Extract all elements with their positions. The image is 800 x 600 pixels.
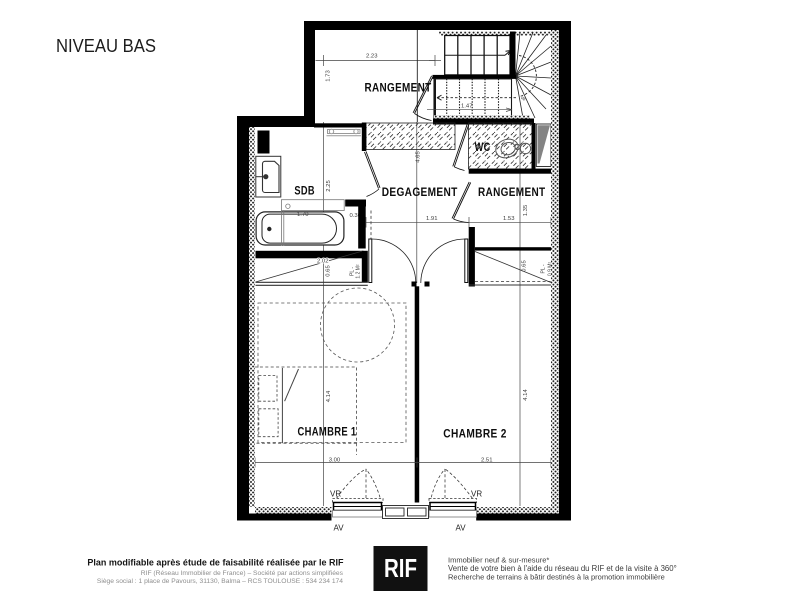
svg-text:AV: AV bbox=[456, 524, 467, 533]
svg-text:4.14: 4.14 bbox=[326, 390, 332, 402]
svg-text:2.02: 2.02 bbox=[317, 259, 328, 265]
svg-text:4.14: 4.14 bbox=[523, 389, 529, 401]
svg-text:VR: VR bbox=[330, 490, 341, 499]
svg-text:1.91: 1.91 bbox=[426, 216, 437, 222]
svg-text:1.73: 1.73 bbox=[326, 70, 332, 82]
svg-text:3.00: 3.00 bbox=[329, 458, 341, 464]
svg-text:RANGEMENT: RANGEMENT bbox=[365, 83, 432, 95]
svg-text:2.51: 2.51 bbox=[481, 458, 492, 464]
svg-text:0.65: 0.65 bbox=[326, 265, 332, 277]
svg-text:CHAMBRE 2: CHAMBRE 2 bbox=[443, 429, 507, 441]
svg-text:RANGEMENT: RANGEMENT bbox=[478, 187, 546, 199]
svg-text:2.23: 2.23 bbox=[366, 54, 378, 60]
svg-text:WC: WC bbox=[475, 142, 491, 154]
svg-text:RIF: RIF bbox=[384, 553, 417, 583]
svg-text:1.53: 1.53 bbox=[503, 216, 515, 222]
svg-text:RIF (Réseau Immobilier de Fran: RIF (Réseau Immobilier de France) – Soci… bbox=[141, 570, 344, 577]
svg-text:1.35: 1.35 bbox=[523, 204, 529, 216]
svg-text:Plan modifiable après étude de: Plan modifiable après étude de faisabili… bbox=[87, 558, 344, 568]
svg-text:1.2 M²: 1.2 M² bbox=[356, 264, 362, 279]
svg-text:2.25: 2.25 bbox=[326, 180, 332, 192]
svg-text:SDB: SDB bbox=[294, 186, 315, 198]
svg-text:PL -: PL - bbox=[541, 264, 547, 273]
svg-text:0.65: 0.65 bbox=[522, 260, 528, 272]
svg-text:NIVEAU BAS: NIVEAU BAS bbox=[56, 36, 156, 56]
svg-text:AV: AV bbox=[334, 524, 345, 533]
svg-text:4.65: 4.65 bbox=[416, 151, 422, 163]
svg-text:DEGAGEMENT: DEGAGEMENT bbox=[382, 187, 458, 199]
svg-text:Recherche de terrains à bâtir: Recherche de terrains à bâtir destinés à… bbox=[448, 573, 665, 582]
svg-text:CHAMBRE 1: CHAMBRE 1 bbox=[298, 427, 357, 439]
svg-text:VR: VR bbox=[471, 490, 482, 499]
svg-text:Siège social : 1 place de Pavo: Siège social : 1 place de Pavours, 31130… bbox=[97, 578, 343, 585]
svg-text:1.70: 1.70 bbox=[297, 212, 309, 218]
svg-text:1.47: 1.47 bbox=[461, 104, 472, 110]
